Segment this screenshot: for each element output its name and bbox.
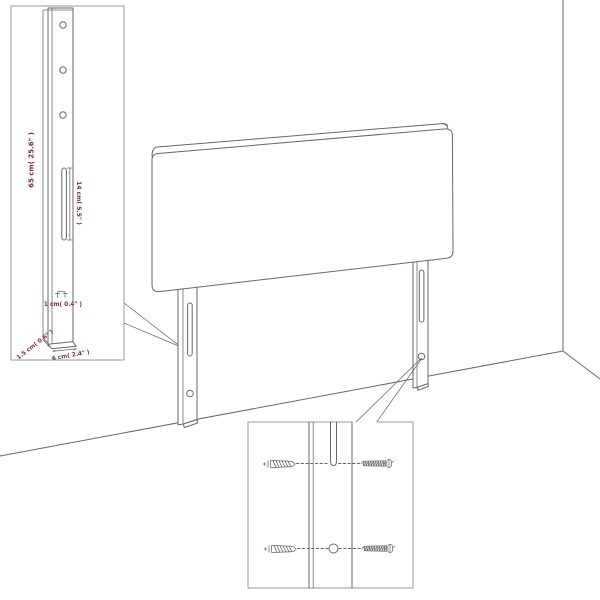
dimension-slot-width: 1 cm( 0.4" ) [44, 291, 83, 308]
connector-to-mounting-detail [356, 359, 422, 422]
connector-line [377, 359, 422, 422]
screw-icon [362, 545, 395, 553]
right-leg-slot [419, 270, 424, 322]
dimension-label-slot-length: 14 cm( 5.5" ) [75, 181, 82, 225]
wall-plug-icon [263, 460, 295, 467]
closeup-slot [331, 422, 337, 466]
leg-detail-inset: 65 cm( 25.6" ) 14 cm( 5.5" ) 1 cm( 0.4" … [11, 6, 124, 362]
detail-leg-hole [60, 67, 66, 73]
headboard-panel [152, 123, 453, 291]
alignment-guides [297, 464, 362, 549]
dimension-line [67, 168, 72, 240]
floor-line [0, 351, 563, 456]
panel-front-face [152, 129, 453, 292]
connector-to-leg-detail [124, 303, 178, 346]
detail-leg-hole [60, 22, 66, 28]
floor-corner-line [563, 351, 600, 379]
slot-profile-glyph [55, 291, 67, 297]
wall-plug-icon [264, 545, 296, 552]
plug-end-mark [263, 463, 266, 466]
mounting-detail-inset [248, 422, 413, 588]
screw-icon [361, 460, 394, 468]
connector-line [356, 359, 421, 422]
connector-line [124, 323, 178, 346]
closeup-hole [329, 544, 338, 553]
dimension-slot-length: 14 cm( 5.5" ) [67, 168, 81, 240]
detail-leg-hole [60, 112, 66, 118]
headboard-diagram-svg: 65 cm( 25.6" ) 14 cm( 5.5" ) 1 cm( 0.4" … [0, 0, 600, 600]
connector-line [124, 303, 178, 344]
screw-threads [361, 461, 386, 466]
dimension-line [53, 349, 77, 352]
left-leg-slot [188, 303, 193, 356]
plug-end-mark [264, 548, 267, 551]
dimension-label-slot-width: 1 cm( 0.4" ) [44, 302, 83, 308]
screw-threads [362, 546, 387, 551]
detail-leg-slot [62, 168, 67, 240]
dimension-label-leg-height: 65 cm( 25.6" ) [28, 132, 36, 188]
left-leg-hole [187, 390, 194, 397]
product-diagram: 65 cm( 25.6" ) 14 cm( 5.5" ) 1 cm( 0.4" … [0, 0, 600, 600]
